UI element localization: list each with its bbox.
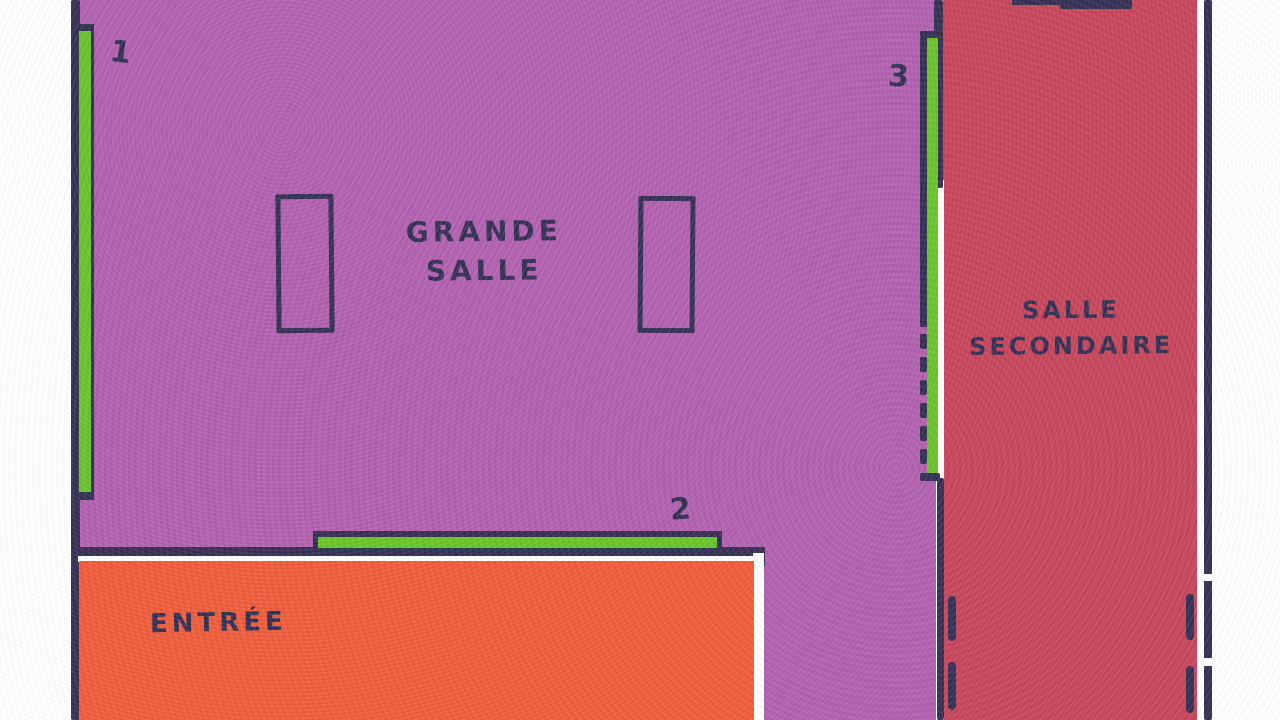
- room-label-grande-salle-line1: GRANDE: [384, 211, 584, 252]
- room-label-grande-salle: GRANDE SALLE: [384, 211, 585, 291]
- pillar-right: [638, 196, 696, 333]
- door-dash: [1186, 666, 1194, 713]
- floor-plan-canvas: GRANDE SALLE SALLE SECONDAIRE ENTRÉE 1 2…: [0, 0, 1280, 720]
- partition-strip-2: [313, 531, 722, 548]
- strip-3-solid-edge: [920, 38, 927, 327]
- partition-strip-3: [927, 38, 938, 473]
- wall-right-notch: [1203, 658, 1213, 666]
- strip-3-dash: [920, 403, 927, 418]
- red-room-top-feature-thick: [1060, 0, 1132, 9]
- room-label-grande-salle-line2: SALLE: [384, 250, 584, 291]
- door-dash: [948, 662, 956, 710]
- strip-3-bottom-cap: [920, 473, 940, 481]
- wall-right: [1204, 0, 1212, 720]
- room-label-salle-secondaire-line1: SALLE: [960, 291, 1182, 329]
- strip-3-dash: [920, 357, 927, 372]
- strip-3-dash: [920, 449, 927, 464]
- marker-label-3: 3: [887, 61, 909, 92]
- door-dash: [1186, 594, 1194, 640]
- strip-3-dash: [920, 334, 927, 349]
- strip-3-dash: [920, 380, 927, 395]
- marker-label-1: 1: [108, 37, 133, 70]
- room-entree: [79, 561, 754, 720]
- door-dash: [948, 596, 956, 641]
- partition-strip-1: [79, 24, 94, 500]
- wall-right-notch: [1203, 574, 1213, 581]
- room-label-salle-secondaire: SALLE SECONDAIRE: [960, 291, 1183, 365]
- pillar-left: [275, 194, 334, 334]
- wall-between-halls-bottom: [937, 478, 944, 720]
- paper-gap-entree-right: [753, 553, 764, 720]
- room-label-salle-secondaire-line2: SECONDAIRE: [960, 327, 1182, 365]
- wall-entree-top: [71, 547, 765, 556]
- strip-3-dash: [920, 426, 927, 441]
- marker-label-2: 2: [669, 494, 692, 525]
- strip-3-top-cap: [920, 31, 940, 38]
- room-label-entree: ENTRÉE: [150, 609, 287, 637]
